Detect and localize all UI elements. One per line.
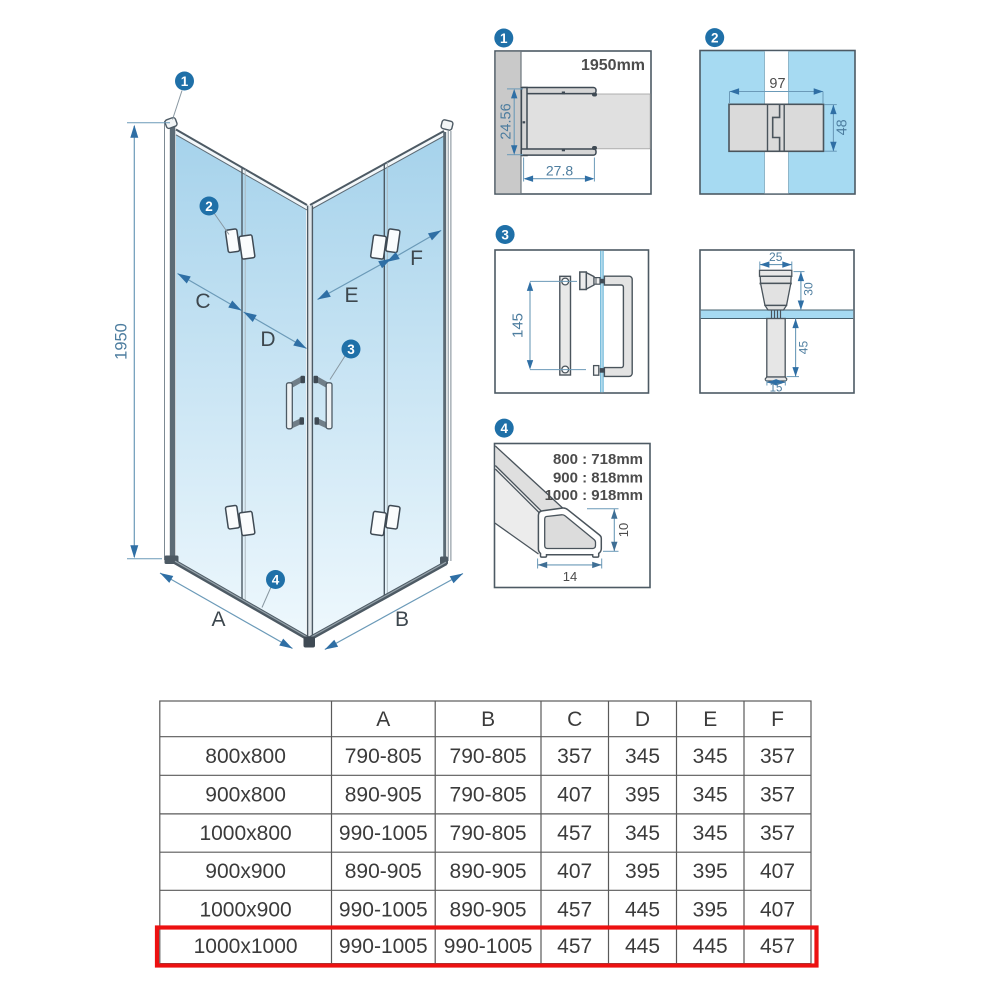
svg-text:C: C [567, 708, 582, 731]
svg-text:1950: 1950 [113, 323, 131, 360]
svg-text:145: 145 [510, 313, 527, 338]
svg-text:395: 395 [693, 898, 728, 921]
svg-text:357: 357 [760, 784, 795, 807]
svg-text:48: 48 [835, 119, 851, 135]
svg-text:890-905: 890-905 [345, 860, 422, 883]
svg-text:25: 25 [769, 250, 783, 264]
svg-text:345: 345 [693, 784, 728, 807]
svg-text:990-1005: 990-1005 [339, 935, 428, 958]
svg-text:990-1005: 990-1005 [339, 822, 428, 845]
svg-text:10: 10 [616, 523, 631, 537]
svg-text:2: 2 [711, 31, 719, 46]
svg-text:27.8: 27.8 [546, 163, 573, 179]
svg-text:15: 15 [770, 383, 783, 395]
svg-text:D: D [260, 328, 275, 351]
svg-text:900x900: 900x900 [205, 860, 286, 883]
svg-text:357: 357 [760, 745, 795, 768]
svg-text:445: 445 [625, 935, 660, 958]
svg-text:790-805: 790-805 [450, 822, 527, 845]
svg-text:24.56: 24.56 [499, 103, 515, 139]
svg-text:3: 3 [501, 228, 509, 243]
svg-text:1000x800: 1000x800 [199, 822, 291, 845]
svg-text:900 : 818mm: 900 : 818mm [553, 470, 643, 487]
svg-text:E: E [703, 708, 717, 731]
svg-text:790-805: 790-805 [450, 784, 527, 807]
svg-text:345: 345 [693, 822, 728, 845]
svg-text:395: 395 [625, 784, 660, 807]
svg-text:3: 3 [347, 342, 355, 357]
svg-text:800 : 718mm: 800 : 718mm [553, 451, 643, 468]
svg-text:407: 407 [557, 860, 592, 883]
svg-text:2: 2 [205, 199, 213, 214]
svg-text:345: 345 [625, 822, 660, 845]
svg-text:457: 457 [760, 935, 795, 958]
svg-text:B: B [395, 608, 409, 631]
svg-text:395: 395 [693, 860, 728, 883]
svg-text:1000x900: 1000x900 [199, 898, 291, 921]
svg-text:4: 4 [272, 573, 280, 588]
svg-text:445: 445 [625, 898, 660, 921]
svg-text:C: C [195, 290, 210, 313]
svg-text:457: 457 [557, 935, 592, 958]
svg-text:1000 : 918mm: 1000 : 918mm [545, 487, 643, 504]
svg-text:1000x1000: 1000x1000 [194, 935, 298, 958]
svg-text:890-905: 890-905 [345, 784, 422, 807]
svg-text:457: 457 [557, 898, 592, 921]
svg-text:D: D [635, 708, 650, 731]
svg-text:30: 30 [802, 282, 816, 296]
svg-text:B: B [481, 708, 495, 731]
svg-text:1: 1 [500, 31, 508, 46]
svg-text:990-1005: 990-1005 [339, 898, 428, 921]
svg-text:A: A [211, 608, 225, 631]
svg-text:800x800: 800x800 [205, 745, 286, 768]
svg-text:395: 395 [625, 860, 660, 883]
svg-text:45: 45 [797, 341, 811, 355]
svg-text:1: 1 [181, 74, 189, 89]
svg-text:900x800: 900x800 [205, 784, 286, 807]
svg-text:14: 14 [563, 569, 577, 584]
svg-text:1950mm: 1950mm [581, 57, 645, 74]
svg-text:E: E [344, 284, 358, 307]
svg-text:407: 407 [557, 784, 592, 807]
svg-text:357: 357 [557, 745, 592, 768]
svg-text:890-905: 890-905 [450, 898, 527, 921]
svg-text:345: 345 [625, 745, 660, 768]
svg-text:97: 97 [769, 76, 785, 92]
svg-text:4: 4 [500, 421, 508, 436]
svg-text:445: 445 [693, 935, 728, 958]
svg-text:457: 457 [557, 822, 592, 845]
svg-text:790-805: 790-805 [345, 745, 422, 768]
svg-text:407: 407 [760, 898, 795, 921]
svg-text:A: A [376, 708, 390, 731]
svg-text:F: F [771, 708, 784, 731]
svg-text:F: F [410, 247, 423, 270]
svg-text:357: 357 [760, 822, 795, 845]
svg-text:407: 407 [760, 860, 795, 883]
svg-text:345: 345 [693, 745, 728, 768]
svg-text:890-905: 890-905 [450, 860, 527, 883]
svg-text:790-805: 790-805 [450, 745, 527, 768]
svg-text:990-1005: 990-1005 [444, 935, 533, 958]
